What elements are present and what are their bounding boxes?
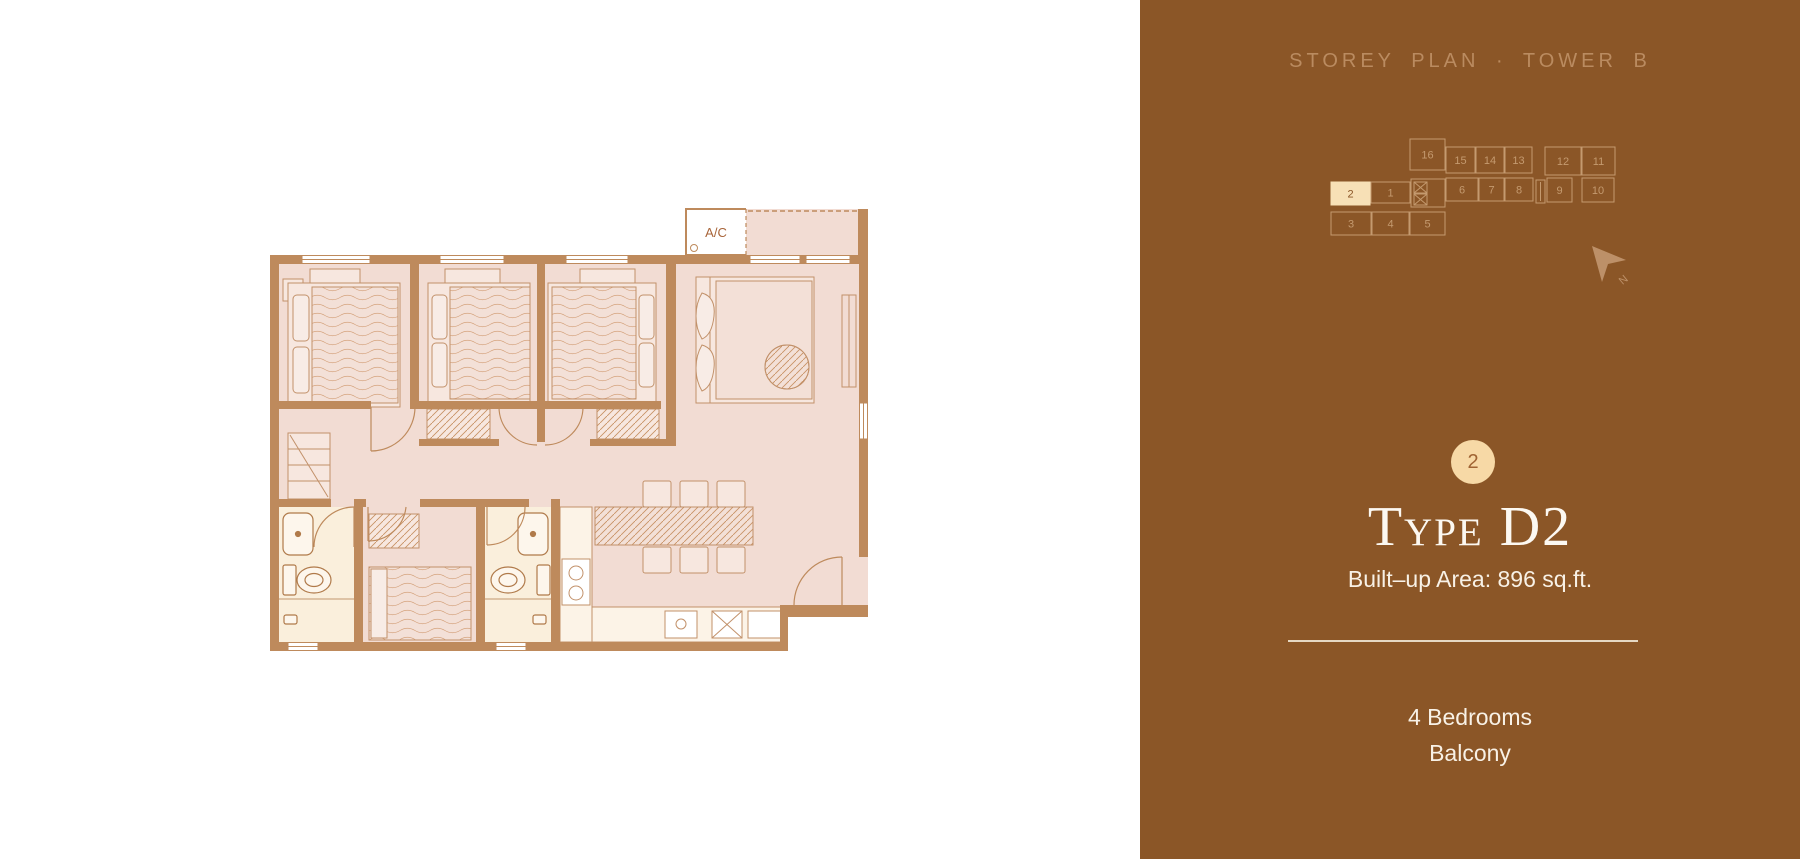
minimap-unit-number: 14 <box>1484 155 1496 167</box>
feature-balcony: Balcony <box>1140 735 1800 771</box>
feature-bedrooms: 4 Bedrooms <box>1140 699 1800 735</box>
selected-unit-badge: 2 <box>1451 440 1495 484</box>
minimap-unit-number: 1 <box>1387 188 1393 200</box>
minimap-unit-number: 7 <box>1488 185 1494 197</box>
ac-label: A/C <box>705 225 727 240</box>
minimap-unit-number: 16 <box>1421 150 1433 162</box>
floor-plan: A/C <box>250 185 870 660</box>
minimap-unit-number: 11 <box>1593 156 1604 168</box>
info-panel: STOREY PLAN · TOWER B 161514131211216789… <box>1140 0 1800 859</box>
floor-plan-drawing: A/C <box>250 185 870 660</box>
north-label: N <box>1617 273 1631 287</box>
minimap-unit-number: 10 <box>1592 185 1604 197</box>
minimap-unit-number: 5 <box>1424 219 1430 231</box>
minimap-unit-number: 6 <box>1459 185 1465 197</box>
ac-ledge: A/C <box>686 209 746 255</box>
minimap-unit-number: 9 <box>1556 185 1562 197</box>
page: A/C <box>0 0 1800 859</box>
minimap-unit-number: 8 <box>1516 185 1522 197</box>
bedroom-3-furniture <box>548 269 656 403</box>
storey-minimap: 16151413121121678910345 <box>1328 124 1628 244</box>
bedroom-2-furniture <box>428 269 530 403</box>
feature-list: 4 Bedrooms Balcony <box>1140 699 1800 771</box>
minimap-unit-number: 12 <box>1557 156 1569 168</box>
minimap-unit-number: 13 <box>1512 155 1524 167</box>
minimap-unit-number: 15 <box>1454 155 1466 167</box>
bedroom-1-furniture <box>283 269 400 407</box>
balcony <box>746 209 868 255</box>
minimap-unit-number: 2 <box>1347 189 1353 201</box>
utility-bed <box>369 567 471 640</box>
north-arrow-icon: N <box>1590 244 1634 292</box>
built-up-area: Built–up Area: 896 sq.ft. <box>1140 566 1800 593</box>
unit-type-title: Type D2 <box>1140 498 1800 556</box>
minimap-unit-number: 3 <box>1348 219 1354 231</box>
panel-title: STOREY PLAN · TOWER B <box>1140 50 1800 73</box>
minimap-unit-number: 4 <box>1387 219 1393 231</box>
divider <box>1288 640 1638 642</box>
